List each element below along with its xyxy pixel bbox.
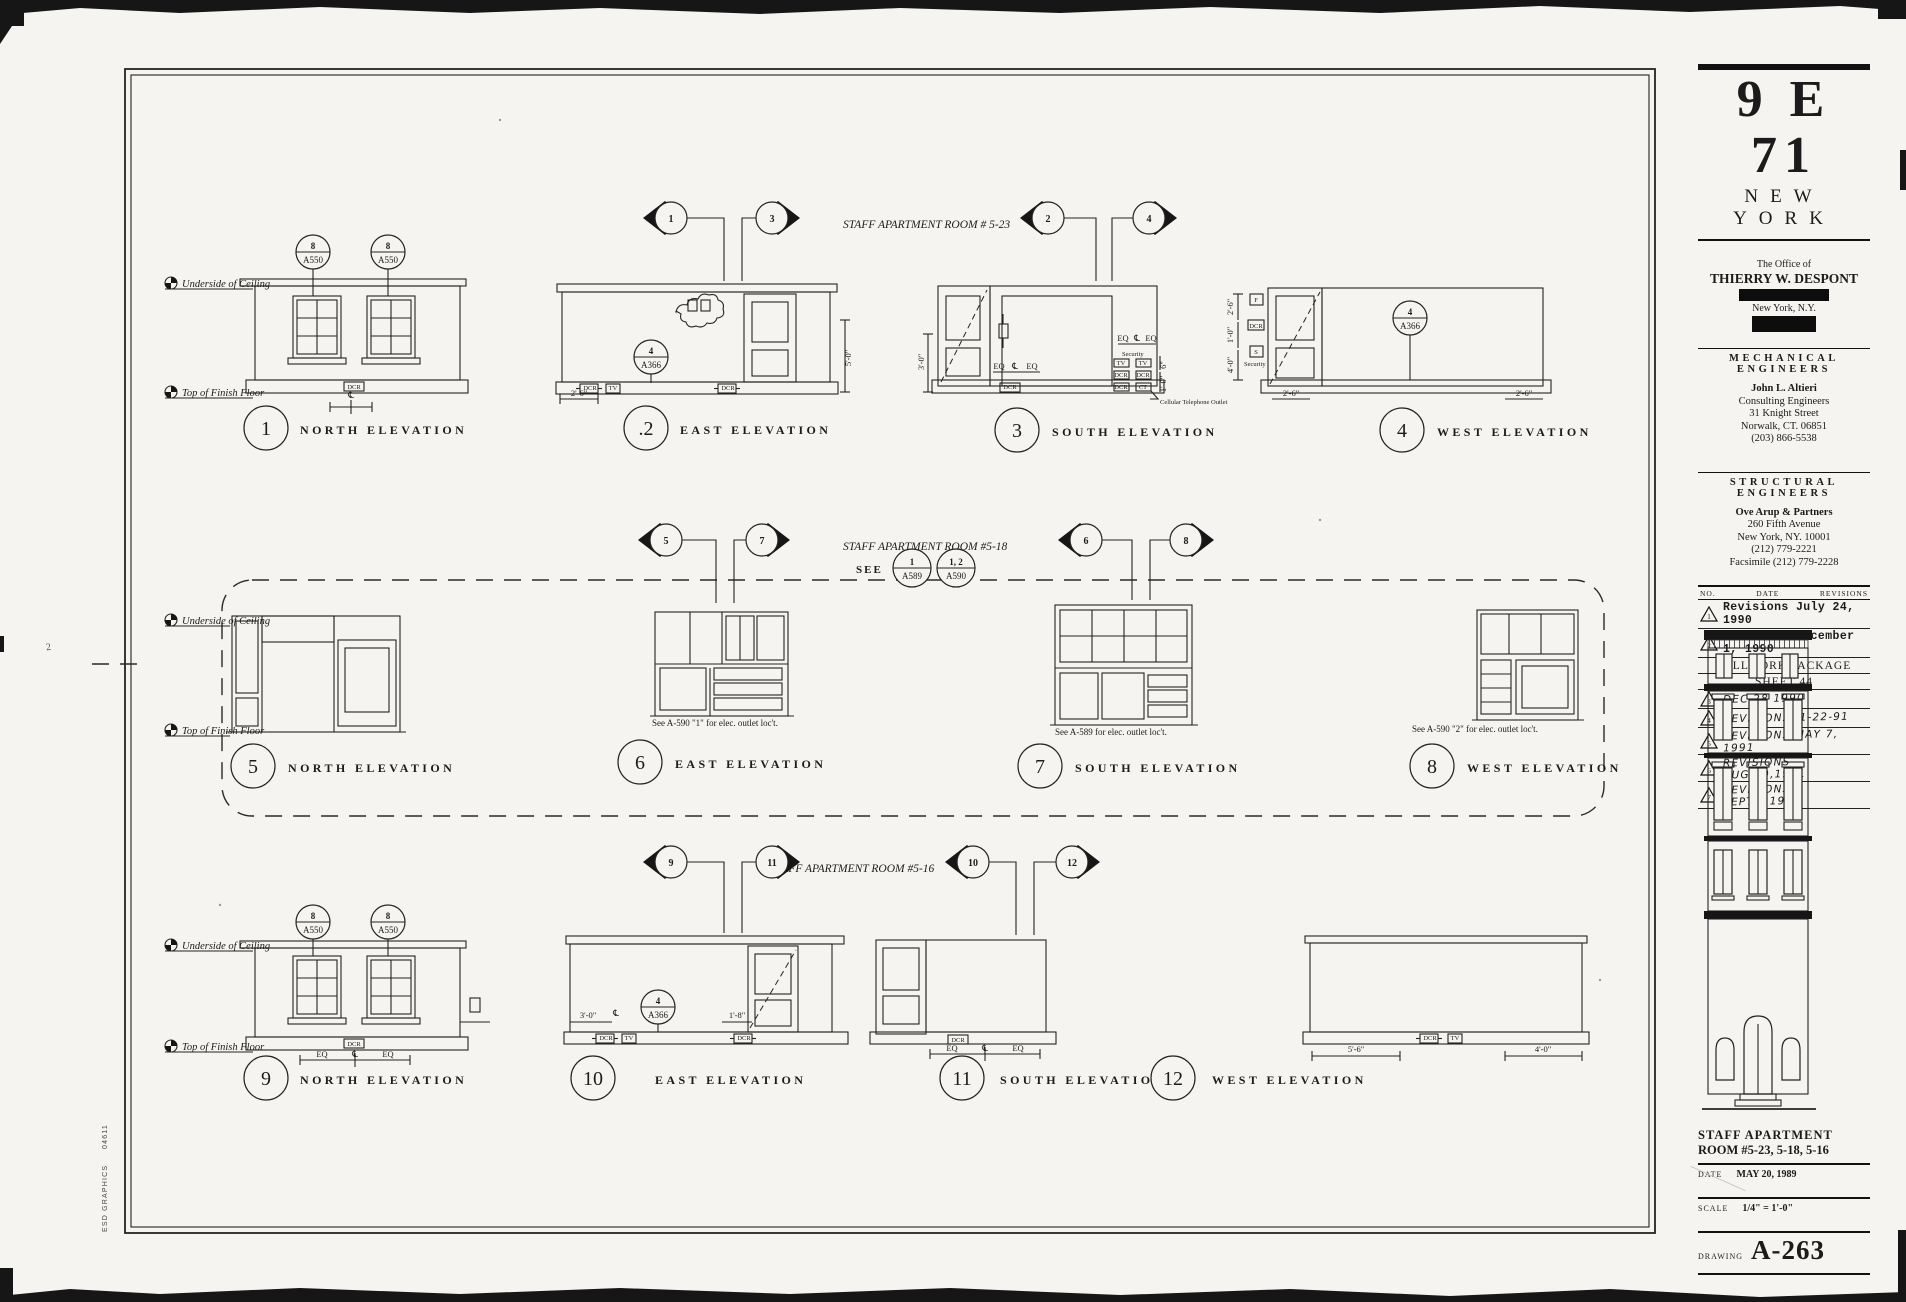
dimension: 6" — [1158, 361, 1168, 369]
marker-number: 7 — [760, 536, 765, 547]
engineer-line: Facsimile (212) 779-2228 — [1698, 557, 1870, 570]
elevation-name: NORTH ELEVATION — [288, 761, 455, 775]
redaction-bar — [1739, 289, 1829, 301]
centerline-mark: ℄ — [1133, 334, 1140, 344]
elevation-number: 4 — [1397, 420, 1407, 442]
dimension: EQ — [1012, 1043, 1023, 1053]
security-label: Security — [1244, 361, 1266, 368]
datum-label: Underside of Ceiling — [182, 941, 270, 952]
redaction-bar — [1752, 316, 1816, 332]
marker-number: 6 — [1084, 536, 1089, 547]
dimension: 4'-0" — [1225, 357, 1235, 373]
engineer-line: Ove Arup & Partners — [1698, 507, 1870, 520]
elevation-marker-icon — [643, 845, 1100, 935]
bubble-bottom: A590 — [946, 571, 966, 581]
project-name: 9 E 71 — [1698, 72, 1870, 184]
centerline-mark: ℄ — [981, 1044, 988, 1054]
elevation-name: NORTH ELEVATION — [300, 423, 467, 437]
revision-triangle-icon: 1 — [1700, 606, 1718, 622]
dimension: EQ — [316, 1049, 327, 1059]
elevation-10-drawing — [564, 936, 848, 1044]
drawing-label: DRAWING — [1698, 1252, 1743, 1261]
elevation-number: 6 — [635, 752, 645, 774]
marker-number: 1 — [669, 214, 674, 225]
structural-engineers-heading: STRUCTURAL ENGINEERS — [1698, 472, 1870, 499]
elevation-7-drawing — [1050, 605, 1198, 725]
outlet-label: F — [1254, 297, 1258, 304]
datum-label: Underside of Ceiling — [182, 279, 270, 290]
marker-number: 5 — [664, 536, 669, 547]
see-bubble-icon — [893, 549, 975, 587]
outlet-label: CT — [1139, 384, 1147, 391]
outlet-label: TV — [1451, 1035, 1460, 1042]
bubble-bottom: A550 — [303, 925, 323, 935]
dimension: EQ — [993, 361, 1004, 371]
outlet-label: DCR — [1249, 323, 1263, 330]
sheet-title-block: STAFF APARTMENT ROOM #5-23, 5-18, 5-16 D… — [1698, 1128, 1870, 1275]
datum-label: Top of Finish Floor — [182, 1042, 265, 1053]
bubble-top: 8 — [386, 911, 391, 921]
marker-number: 2 — [1046, 214, 1051, 225]
elevation-number: 3 — [1012, 420, 1022, 442]
revisions-table-header: NO. DATE REVISIONS — [1698, 587, 1870, 600]
see-reference: SEE — [856, 564, 883, 576]
elevation-name: EAST ELEVATION — [655, 1073, 806, 1087]
dimension: 2'-6" — [571, 388, 587, 398]
dimension: EQ — [946, 1043, 957, 1053]
revision-row: 1 Revisions July 24, 1990 — [1698, 600, 1870, 629]
outlet-label: TV — [1117, 360, 1126, 367]
dimension: EQ — [1117, 333, 1128, 343]
bubble-bottom: A366 — [1400, 321, 1420, 331]
centerline-mark: ℄ — [347, 391, 354, 401]
bubble-top: 1 — [910, 557, 915, 567]
architect-city: New York, N.Y. — [1698, 303, 1870, 314]
outlet-label: DCR — [721, 385, 735, 392]
elevation-marker-icon — [1020, 201, 1177, 281]
bubble-top: 4 — [649, 346, 654, 356]
dimension: 4'-0" — [1535, 1044, 1551, 1054]
date-row: DATE MAY 20, 1989 — [1698, 1165, 1870, 1192]
date-value: MAY 20, 1989 — [1736, 1169, 1796, 1180]
dimension: EQ — [1026, 361, 1037, 371]
room-5-23-row: STAFF APARTMENT ROOM # 5-23 1 3 2 4 — [165, 201, 1592, 452]
sheet-title-line1: STAFF APARTMENT — [1698, 1128, 1870, 1143]
outlet-label: DCR — [1136, 372, 1150, 379]
print-shop-credit: ESD GRAPHICS 04611 — [102, 1124, 109, 1232]
marker-number: 4 — [1147, 214, 1152, 225]
bubble-bottom: A366 — [648, 1010, 668, 1020]
elevation-name: NORTH ELEVATION — [300, 1073, 467, 1087]
bubble-bottom: A589 — [902, 571, 922, 581]
dimension: 1'-0" — [1158, 376, 1168, 392]
bubble-top: 1, 2 — [949, 557, 963, 567]
centerline-mark: ℄ — [1011, 362, 1018, 372]
marker-number: 9 — [669, 858, 674, 869]
bubble-bottom: A550 — [303, 255, 323, 265]
security-label: Security — [1122, 351, 1144, 358]
outlet-label: DCR — [1423, 1035, 1437, 1042]
outlet-label: S — [1254, 349, 1258, 356]
dimension: 5'-0" — [843, 350, 853, 366]
mechanical-engineers-info: John L. Altieri Consulting Engineers 31 … — [1698, 383, 1870, 446]
engineer-line: Consulting Engineers — [1698, 396, 1870, 409]
architect-office-line: The Office of — [1698, 259, 1870, 270]
engineer-line: 31 Knight Street — [1698, 408, 1870, 421]
datum-label: Top of Finish Floor — [182, 726, 265, 737]
bubble-top: 4 — [1408, 307, 1413, 317]
dimension: 3'-0" — [916, 354, 926, 370]
elevation-name: WEST ELEVATION — [1467, 761, 1622, 775]
dimension: EQ — [382, 1049, 393, 1059]
elevation-12-drawing — [1303, 936, 1589, 1061]
engineer-line: (212) 779-2221 — [1698, 544, 1870, 557]
dimension: EQ — [1145, 333, 1156, 343]
drawing-number: A-263 — [1751, 1235, 1825, 1266]
dimension: 2'-6" — [1516, 388, 1532, 398]
elevation-drawings: STAFF APARTMENT ROOM # 5-23 1 3 2 4 — [0, 0, 1906, 1302]
scale-value: 1/4" = 1'-0" — [1742, 1203, 1793, 1214]
dimension: 3'-0" — [580, 1010, 596, 1020]
col-no: NO. — [1700, 589, 1716, 598]
elevation-4-drawing — [1233, 288, 1551, 399]
outlet-label: DCR — [347, 384, 361, 391]
elevation-name: SOUTH ELEVATION — [1000, 1073, 1166, 1087]
room-5-16-row: STAFF APARTMENT ROOM #5-16 9 11 10 12 — [165, 845, 1589, 1100]
elevation-number: 5 — [248, 756, 258, 778]
marker-number: 8 — [1184, 536, 1189, 547]
elevation-number: 7 — [1035, 756, 1045, 778]
structural-engineers-info: Ove Arup & Partners 260 Fifth Avenue New… — [1698, 507, 1870, 570]
room-5-18-row: STAFF APARTMENT ROOM #5-18 SEE 1 A589 1,… — [92, 523, 1622, 816]
outlet-label: DCR — [599, 1035, 613, 1042]
elevation-1-drawing — [240, 269, 468, 414]
title-block-rule — [1698, 1273, 1870, 1275]
datum-label: Top of Finish Floor — [182, 388, 265, 399]
elevation-2-drawing — [556, 284, 850, 404]
elevation-name: SOUTH ELEVATION — [1052, 425, 1218, 439]
dimension: 5'-6" — [1348, 1044, 1364, 1054]
outlet-label: DCR — [1114, 384, 1128, 391]
datum-label: Underside of Ceiling — [182, 616, 270, 627]
dimension: 1'-8" — [729, 1010, 745, 1020]
elevation-name: WEST ELEVATION — [1437, 425, 1592, 439]
title-block-rule — [1698, 239, 1870, 241]
sheet: STAFF APARTMENT ROOM # 5-23 1 3 2 4 — [0, 0, 1906, 1302]
title-block-rule — [1698, 64, 1870, 70]
outlet-label: DCR — [347, 1041, 361, 1048]
elevation-number: 1 — [261, 418, 271, 440]
building-facade-vignette — [1702, 628, 1816, 1130]
elevation-number: 12 — [1163, 1068, 1183, 1090]
centerline-mark: ℄ — [351, 1050, 358, 1060]
dimension: 2'-6" — [1225, 299, 1235, 315]
col-revisions: REVISIONS — [1820, 589, 1868, 598]
marker-number: 10 — [968, 858, 978, 869]
mechanical-engineers-heading: MECHANICAL ENGINEERS — [1698, 348, 1870, 375]
bubble-top: 8 — [311, 911, 316, 921]
elevation-5-drawing — [226, 616, 406, 732]
engineer-line: John L. Altieri — [1698, 383, 1870, 396]
sheet-title-line2: ROOM #5-23, 5-18, 5-16 — [1698, 1143, 1870, 1158]
drawing-number-row: DRAWING A-263 — [1698, 1233, 1870, 1268]
outlet-label: TV — [625, 1035, 634, 1042]
elevation-number: .2 — [639, 418, 654, 440]
marker-number: 12 — [1067, 858, 1077, 869]
revision-number: 1 — [1707, 612, 1711, 621]
elevation-number: 10 — [583, 1068, 603, 1090]
outlet-label: TV — [609, 385, 618, 392]
elevation-marker-icon — [643, 201, 800, 281]
elevation-name: EAST ELEVATION — [680, 423, 831, 437]
bubble-bottom: A550 — [378, 925, 398, 935]
credit-code: 04611 — [102, 1124, 109, 1149]
elevation-9-drawing — [240, 939, 490, 1067]
outlet-label: DCR — [1114, 372, 1128, 379]
bubble-top: 4 — [656, 996, 661, 1006]
outlet-location-note: See A-589 for elec. outlet loc't. — [1055, 727, 1167, 737]
scale-label: SCALE — [1698, 1204, 1728, 1213]
bubble-bottom: A550 — [378, 255, 398, 265]
outlet-label: TV — [1139, 360, 1148, 367]
elevation-name: WEST ELEVATION — [1212, 1073, 1367, 1087]
scale-row: SCALE 1/4" = 1'-0" — [1698, 1199, 1870, 1226]
dimension: 1'-0" — [1225, 327, 1235, 343]
outlet-label: DCR — [1003, 384, 1017, 391]
outlet-location-note: See A-590 "2" for elec. outlet loc't. — [1412, 724, 1538, 734]
credit-text: ESD GRAPHICS — [102, 1165, 109, 1232]
cellular-outlet-note: Cellular Telephone Outlet — [1160, 399, 1227, 406]
elevation-number: 8 — [1427, 756, 1437, 778]
bubble-bottom: A366 — [641, 360, 661, 370]
architect-name: THIERRY W. DESPONT — [1698, 271, 1870, 287]
marker-number: 11 — [767, 858, 776, 869]
elevation-name: SOUTH ELEVATION — [1075, 761, 1241, 775]
project-city: NEW YORK — [1698, 186, 1870, 230]
elevation-number: 9 — [261, 1068, 271, 1090]
engineer-line: 260 Fifth Avenue — [1698, 519, 1870, 532]
elevation-name: EAST ELEVATION — [675, 757, 826, 771]
outlet-label: DCR — [737, 1035, 751, 1042]
engineer-line: New York, NY. 10001 — [1698, 532, 1870, 545]
bubble-top: 8 — [386, 241, 391, 251]
room-title: STAFF APARTMENT ROOM # 5-23 — [843, 219, 1010, 231]
marker-number: 3 — [770, 214, 775, 225]
dimension: 2'-6" — [1283, 388, 1299, 398]
elevation-6-drawing — [650, 612, 794, 716]
room-title: STAFF APARTMENT ROOM #5-18 — [843, 541, 1008, 553]
elevation-number: 11 — [952, 1068, 971, 1090]
col-date: DATE — [1756, 589, 1779, 598]
centerline-mark: ℄ — [612, 1009, 619, 1019]
engineer-line: (203) 866-5538 — [1698, 433, 1870, 446]
revision-text: Revisions July 24, 1990 — [1723, 601, 1868, 627]
elevation-8-drawing — [1472, 610, 1584, 720]
bubble-top: 8 — [311, 241, 316, 251]
outlet-location-note: See A-590 "1" for elec. outlet loc't. — [652, 718, 778, 728]
engineer-line: Norwalk, CT. 06851 — [1698, 421, 1870, 434]
